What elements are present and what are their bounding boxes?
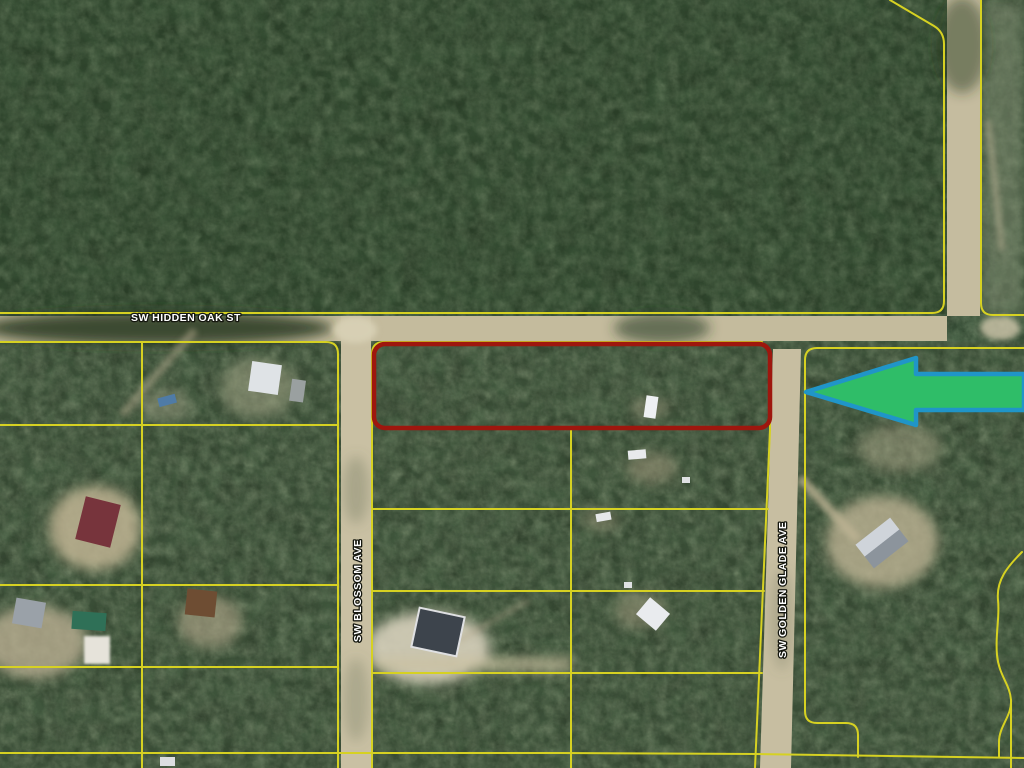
house-gray-roof	[12, 598, 46, 629]
street-label-golden-glade: SW GOLDEN GLADE AVE	[777, 522, 789, 658]
white-speck-2	[624, 582, 632, 588]
white-speck-1	[682, 477, 690, 483]
house-green-roof	[71, 611, 106, 631]
white-patch	[84, 636, 110, 664]
street-label-blossom: SW BLOSSOM AVE	[352, 539, 364, 642]
trailer-white	[628, 449, 647, 460]
aerial-map: SW HIDDEN OAK ST SW BLOSSOM AVE SW GOLDE…	[0, 0, 1024, 768]
aerial-map-canvas: SW HIDDEN OAK ST SW BLOSSOM AVE SW GOLDE…	[0, 0, 1024, 768]
street-label-hidden-oak: SW HIDDEN OAK ST	[131, 312, 241, 324]
house-brown-roof	[185, 589, 218, 618]
north-forest-shade	[0, 0, 1024, 314]
car-bottom	[160, 757, 175, 766]
house-white-roof	[248, 361, 282, 395]
barn-dark-roof	[411, 608, 464, 657]
